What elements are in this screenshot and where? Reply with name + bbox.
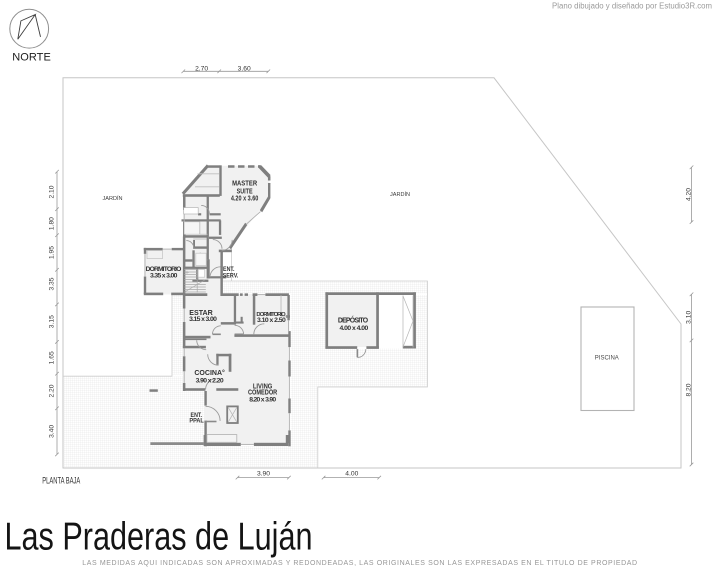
svg-text:JARDÍN: JARDÍN xyxy=(103,195,123,202)
svg-text:SERV.: SERV. xyxy=(223,273,239,280)
svg-text:1.65: 1.65 xyxy=(49,351,56,364)
svg-text:4.20: 4.20 xyxy=(685,188,692,201)
svg-text:3.35 x 3.00: 3.35 x 3.00 xyxy=(150,273,178,280)
svg-text:3.15: 3.15 xyxy=(49,315,56,328)
svg-text:Las Praderas de Luján: Las Praderas de Luján xyxy=(5,516,313,559)
svg-text:DEPÓSITO: DEPÓSITO xyxy=(338,316,369,325)
svg-text:JARDÍN: JARDÍN xyxy=(390,191,410,198)
svg-text:3.10 x 2.50: 3.10 x 2.50 xyxy=(257,317,286,324)
svg-text:PISCINA: PISCINA xyxy=(595,355,620,362)
svg-text:4.20 x 3.60: 4.20 x 3.60 xyxy=(231,195,259,202)
svg-text:8.20: 8.20 xyxy=(685,383,692,396)
svg-text:2.20: 2.20 xyxy=(49,384,56,397)
svg-text:2.10: 2.10 xyxy=(49,185,56,198)
svg-text:2.70: 2.70 xyxy=(195,65,208,72)
svg-text:1.95: 1.95 xyxy=(49,246,56,259)
svg-text:4.00: 4.00 xyxy=(345,471,358,478)
svg-text:PPAL: PPAL xyxy=(189,417,204,424)
svg-text:LAS MEDIDAS AQUI INDICADAS SON: LAS MEDIDAS AQUI INDICADAS SON APROXIMAD… xyxy=(82,560,637,567)
svg-text:3.35: 3.35 xyxy=(49,277,56,290)
svg-text:3.15 x 3.00: 3.15 x 3.00 xyxy=(189,316,217,323)
svg-text:3.10: 3.10 xyxy=(685,311,692,324)
svg-text:3.90: 3.90 xyxy=(257,471,270,478)
svg-text:3.90 x 2.20: 3.90 x 2.20 xyxy=(196,377,224,384)
svg-text:3.40: 3.40 xyxy=(49,425,56,438)
svg-text:SUITE: SUITE xyxy=(237,186,253,195)
svg-text:Plano dibujado y diseñado por: Plano dibujado y diseñado por Estudio3R.… xyxy=(552,2,712,11)
svg-text:1.80: 1.80 xyxy=(49,217,56,230)
svg-text:8.20 x 3.90: 8.20 x 3.90 xyxy=(249,396,276,403)
svg-text:NORTE: NORTE xyxy=(12,52,51,64)
svg-text:3.60: 3.60 xyxy=(238,65,251,72)
svg-text:4.00 x 4.00: 4.00 x 4.00 xyxy=(340,325,369,332)
svg-text:COCINA°: COCINA° xyxy=(194,369,225,377)
svg-text:COMEDOR: COMEDOR xyxy=(248,389,277,397)
svg-text:PLANTA BAJA: PLANTA BAJA xyxy=(42,475,80,485)
